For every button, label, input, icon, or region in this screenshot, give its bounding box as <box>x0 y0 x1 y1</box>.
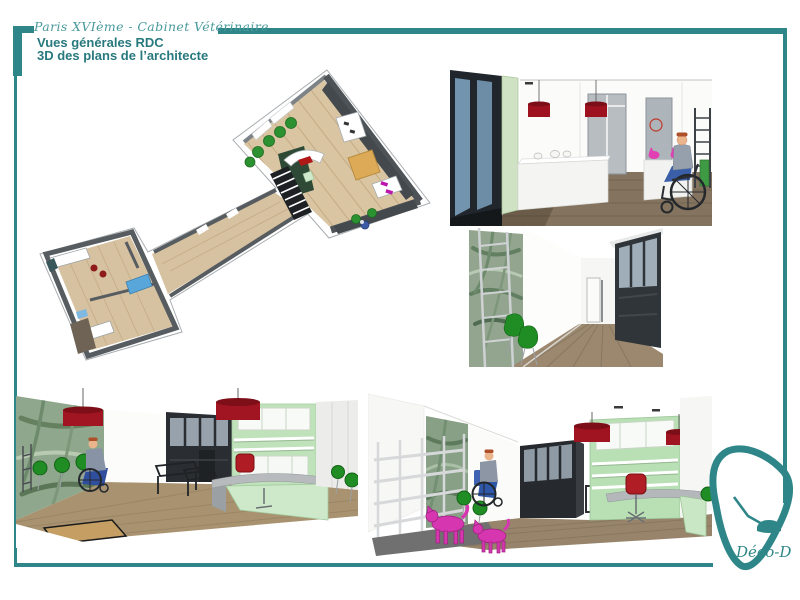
frame-bottom-line <box>14 563 713 567</box>
frame-right-line <box>783 28 787 503</box>
entrance-door <box>450 70 502 226</box>
view-subtitle: 3D des plans de l’architecte <box>37 49 208 62</box>
project-title: Paris XVIème - Cabinet Vétérinaire <box>34 19 269 34</box>
view-title-block: Vues générales RDC 3D des plans de l’arc… <box>37 36 208 62</box>
glazed-partition <box>609 228 663 348</box>
retail-office-view <box>368 390 712 562</box>
reception-counter <box>518 151 610 211</box>
red-chair <box>236 454 254 472</box>
desk-lamp-icon <box>734 497 781 533</box>
red-office-chair <box>626 474 646 494</box>
waiting-area-desk-view <box>16 388 358 553</box>
frame-top-bar <box>218 28 787 34</box>
glazed-partition <box>166 412 232 482</box>
pendant-lamp-red-2 <box>216 388 260 420</box>
corridor-waiting-view <box>463 228 663 367</box>
entrance-reception-view <box>450 68 712 226</box>
title-bracket-side <box>13 26 22 76</box>
floor-plan-axonometric-3d <box>30 62 435 372</box>
presentation-slide: Paris XVIème - Cabinet Vétérinaire Vues … <box>0 0 800 600</box>
logo-text: Déco-D <box>736 543 791 561</box>
green-pilaster <box>502 76 518 214</box>
